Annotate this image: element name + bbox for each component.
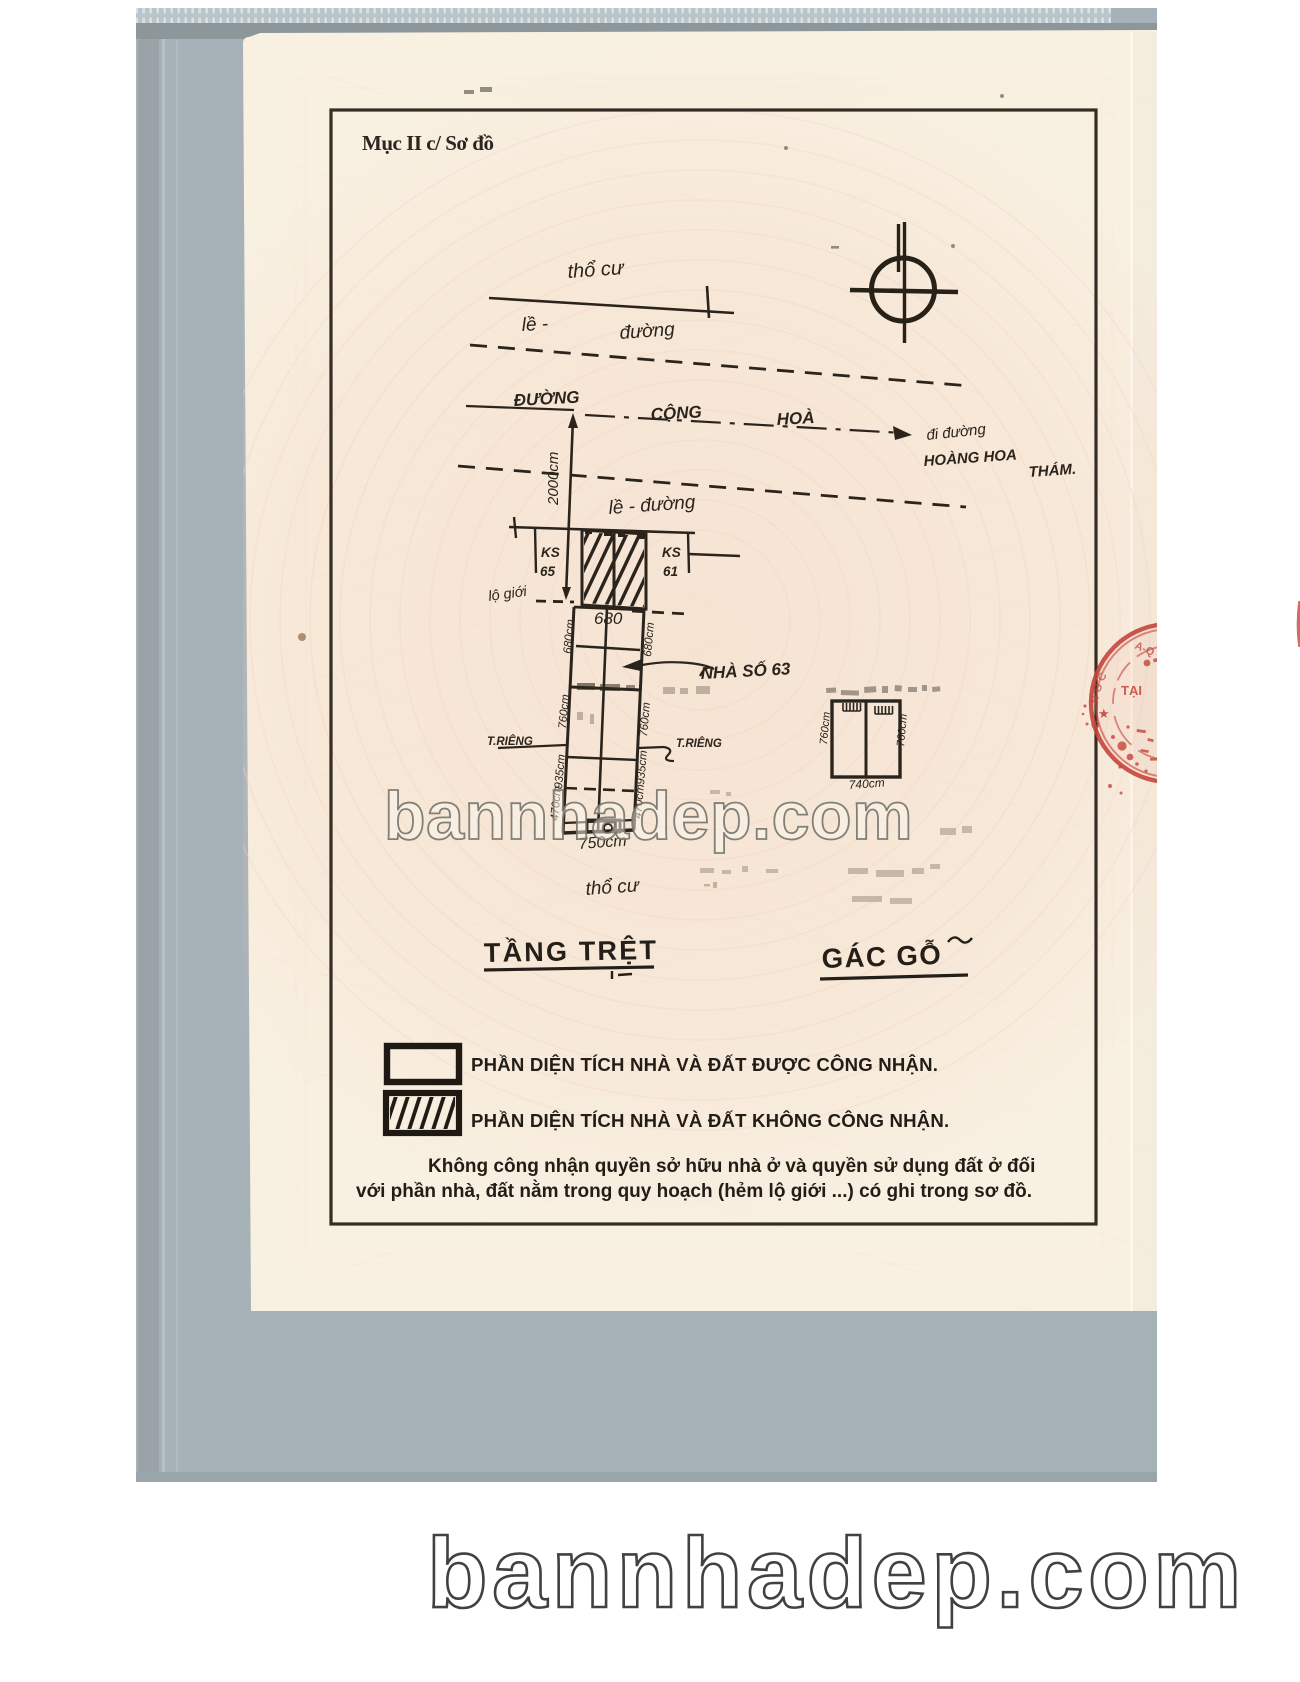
svg-text:bannhadep.com: bannhadep.com (427, 1517, 1246, 1628)
svg-text:HOÀ: HOÀ (776, 408, 815, 429)
svg-text:THÁM.: THÁM. (1028, 461, 1077, 481)
svg-text:PHẦN DIỆN TÍCH NHÀ VÀ ĐẤT KHÔN: PHẦN DIỆN TÍCH NHÀ VÀ ĐẤT KHÔNG CÔNG NHẬ… (471, 1110, 949, 1131)
svg-text:65: 65 (540, 564, 556, 579)
svg-text:TẠI: TẠI (1121, 683, 1142, 698)
svg-text:TẦNG TRỆT: TẦNG TRỆT (484, 934, 659, 968)
svg-text:thổ cư: thổ cư (585, 875, 642, 900)
svg-text:61: 61 (663, 564, 678, 579)
svg-text:thổ cư: thổ cư (567, 257, 626, 283)
svg-text:Mục II c/ Sơ đồ: Mục II c/ Sơ đồ (362, 131, 494, 155)
svg-text:bannhadep.com: bannhadep.com (384, 778, 913, 854)
svg-text:T.RIÊNG: T.RIÊNG (676, 737, 722, 750)
svg-text:GÁC GỖ: GÁC GỖ (821, 939, 943, 974)
svg-text:★: ★ (1098, 706, 1110, 721)
svg-text:đường: đường (619, 319, 676, 344)
svg-text:KS: KS (541, 545, 560, 560)
svg-text:với phần nhà, đất nằm trong qu: với phần nhà, đất nằm trong quy hoạch (h… (356, 1180, 1032, 1202)
svg-text:2000cm: 2000cm (545, 452, 562, 506)
svg-text:ĐƯỜNG: ĐƯỜNG (513, 388, 580, 410)
svg-text:680: 680 (594, 609, 623, 628)
svg-text:lề -: lề - (521, 314, 548, 336)
svg-text:N: N (1089, 695, 1102, 704)
svg-text:KS: KS (662, 545, 681, 560)
svg-text:Không công nhận quyền sở hữu n: Không công nhận quyền sở hữu nhà ở và qu… (428, 1156, 1035, 1177)
svg-text:PHẦN DIỆN TÍCH NHÀ VÀ ĐẤT ĐƯỢC: PHẦN DIỆN TÍCH NHÀ VÀ ĐẤT ĐƯỢC CÔNG NHẬN… (471, 1054, 938, 1075)
